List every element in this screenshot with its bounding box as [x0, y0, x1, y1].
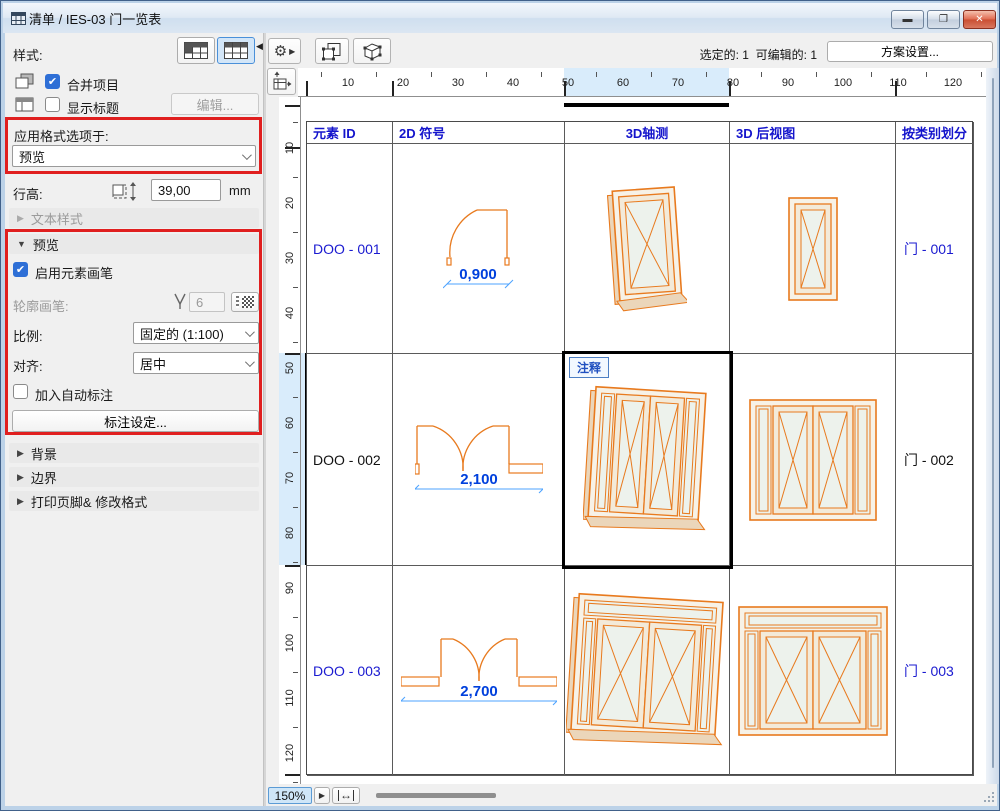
ruler-number: 120 [284, 739, 296, 767]
align-label: 对齐: [13, 356, 43, 375]
show-title-label: 显示标题 [67, 98, 119, 117]
ruler-number: 110 [284, 684, 296, 712]
scale-value: 固定的 (1:100) [140, 324, 224, 343]
auto-dimension-label: 加入自动标注 [35, 385, 113, 404]
preview-section-label: 预览 [33, 235, 59, 254]
resize-grip[interactable] [988, 796, 990, 798]
editable-count: 可编辑的: 1 [756, 48, 817, 62]
ruler-number: 80 [719, 77, 747, 89]
door-3d-axon-view [607, 183, 687, 315]
gear-icon: ⚙ [274, 42, 287, 60]
schedule-canvas[interactable]: 元素 ID2D 符号3D轴测3D 后视图按类别划分DOO - 0010,900门… [301, 97, 986, 784]
ruler-number: 60 [284, 409, 296, 437]
chevron-down-icon [245, 357, 255, 367]
outline-pen-value: 6 [196, 295, 203, 310]
ruler-tick [431, 72, 432, 77]
cell-element-id[interactable]: DOO - 001 [307, 144, 393, 354]
ruler-boundary-tick [895, 81, 897, 97]
ruler-tick [293, 727, 298, 728]
auto-dimension-checkbox[interactable] [13, 384, 28, 399]
ruler-tick [981, 72, 982, 77]
row-height-icon [111, 181, 141, 202]
ruler-boundary-tick [285, 353, 301, 355]
select-elements-button[interactable] [315, 38, 349, 64]
schedule-table: 元素 ID2D 符号3D轴测3D 后视图按类别划分DOO - 0010,900门… [306, 121, 973, 775]
scheme-settings-button[interactable]: 方案设置... [827, 41, 993, 62]
text-style-section-label: 文本样式 [31, 209, 83, 228]
edit-button[interactable]: 编辑... [171, 93, 259, 115]
settings-panel: 样式: ◀ ✔ 合并项目 [5, 33, 263, 806]
apply-format-select[interactable]: 预览 [12, 145, 256, 167]
chevron-down-icon [245, 327, 255, 337]
ruler-number: 110 [884, 77, 912, 89]
ruler-tick [293, 122, 298, 123]
close-button[interactable]: ✕ [963, 10, 996, 29]
cell-element-id[interactable]: DOO - 002 [307, 354, 393, 566]
ruler-number: 90 [284, 574, 296, 602]
table-header-0[interactable]: 元素 ID [307, 122, 393, 144]
door-2d-symbol: 2,700 [401, 631, 557, 711]
merge-items-icon [15, 73, 34, 90]
section-background[interactable]: ▶ 背景 [9, 443, 259, 463]
ruler-number: 90 [774, 77, 802, 89]
ruler-boundary-tick [564, 81, 566, 97]
ruler-tick [871, 72, 872, 77]
border-section-label: 边界 [31, 468, 57, 487]
cell-category[interactable]: 门 - 003 [896, 566, 974, 776]
row-height-unit: mm [229, 183, 251, 198]
row-height-input[interactable]: 39,00 [151, 179, 221, 201]
ruler-number: 120 [939, 77, 967, 89]
panel-collapse-arrow[interactable]: ◀ [256, 41, 263, 52]
selection-status: 选定的: 1 可编辑的: 1 [641, 46, 817, 63]
ruler-tick [706, 72, 707, 77]
cell-element-id[interactable]: DOO - 003 [307, 566, 393, 776]
ruler-tick [651, 72, 652, 77]
ruler-tick [293, 617, 298, 618]
selected-column-indicator [564, 103, 729, 107]
selected-count: 选定的: 1 [700, 48, 749, 62]
ruler-tick [293, 672, 298, 673]
ruler-boundary-tick [729, 81, 731, 97]
ruler-number: 50 [554, 77, 582, 89]
align-value: 居中 [140, 354, 166, 373]
ruler-number: 40 [284, 299, 296, 327]
style-flat-table-button[interactable] [177, 37, 215, 64]
ruler-tick [293, 452, 298, 453]
ruler-tick [816, 72, 817, 77]
ruler-tick [926, 72, 927, 77]
restore-button[interactable]: ❐ [927, 10, 960, 29]
ruler-boundary-tick [285, 565, 301, 567]
zoom-level-box[interactable]: 150% [268, 787, 312, 804]
ruler-number: 20 [284, 189, 296, 217]
scale-label: 比例: [13, 326, 43, 345]
ruler-number: 80 [284, 519, 296, 547]
element-id: DOO - 002 [307, 452, 381, 468]
selection-frames-icon [322, 42, 342, 61]
outline-pen-label: 轮廓画笔: [13, 296, 69, 315]
ruler-number: 70 [284, 464, 296, 492]
category-value: 门 - 002 [896, 450, 954, 470]
ruler-tick [293, 177, 298, 178]
ruler-tick [293, 397, 298, 398]
minimize-button[interactable]: ▬ [891, 10, 924, 29]
chevron-down-icon [242, 150, 252, 160]
element-id: DOO - 001 [307, 241, 381, 257]
ruler-number: 100 [284, 629, 296, 657]
cell-2d-symbol[interactable]: 2,100 [393, 354, 565, 566]
section-text-style[interactable]: ▶ 文本样式 [9, 208, 259, 228]
svg-text:2,700: 2,700 [460, 683, 498, 700]
ruler-tick [293, 287, 298, 288]
ruler-tick [293, 507, 298, 508]
row-height-value: 39,00 [158, 183, 191, 198]
door-3d-rear-view [787, 196, 839, 302]
cell-3d-rear[interactable] [730, 144, 896, 354]
ruler-selected-column-highlight [564, 68, 729, 97]
ruler-number: 60 [609, 77, 637, 89]
door-3d-rear-view [748, 398, 878, 522]
dimension-settings-button[interactable]: 标注设定... [12, 410, 259, 432]
ruler-number: 70 [664, 77, 692, 89]
pen-pattern-button[interactable] [231, 292, 259, 312]
schedule-grid-icon [11, 12, 26, 25]
cell-category[interactable]: 门 - 001 [896, 144, 974, 354]
cell-category[interactable]: 门 - 002 [896, 354, 974, 566]
apply-format-value: 预览 [19, 147, 45, 166]
checker-pattern-icon [242, 296, 254, 308]
outline-pen-value-box[interactable]: 6 [189, 292, 225, 312]
show-title-icon [15, 97, 34, 112]
section-border[interactable]: ▶ 边界 [9, 467, 259, 487]
selection-cube-icon [360, 42, 384, 61]
ruler-number: 30 [284, 244, 296, 272]
ruler-boundary-tick [285, 774, 301, 776]
ruler-boundary-tick [285, 105, 301, 107]
merge-items-label: 合并项目 [67, 75, 119, 94]
ruler-origin-button[interactable] [267, 68, 296, 95]
row-height-label: 行高: [13, 184, 43, 203]
door-3d-rear-view [737, 605, 889, 737]
line-pattern-icon [236, 296, 239, 308]
cell-3d-axon[interactable] [565, 144, 730, 354]
show-title-checkbox[interactable] [45, 97, 60, 112]
ruler-boundary-tick [285, 147, 301, 149]
align-select[interactable]: 居中 [133, 352, 259, 374]
vertical-scrollbar-thumb[interactable] [992, 78, 994, 768]
flyout-arrow-icon: ▶ [289, 47, 295, 56]
scale-select[interactable]: 固定的 (1:100) [133, 322, 259, 344]
cell-2d-symbol[interactable]: 0,900 [393, 144, 565, 354]
table-header-3[interactable]: 3D 后视图 [730, 122, 896, 144]
fit-width-icon: ↔ [338, 790, 354, 801]
door-3d-axon-view [566, 592, 728, 750]
svg-text:0,900: 0,900 [459, 266, 497, 283]
category-value: 门 - 001 [896, 239, 954, 259]
table-header-2[interactable]: 3D轴测 [565, 122, 730, 144]
ruler-boundary-tick [306, 81, 308, 97]
door-2d-symbol: 0,900 [443, 204, 515, 294]
cell-2d-symbol[interactable]: 2,700 [393, 566, 565, 776]
merge-items-checkbox[interactable]: ✔ [45, 74, 60, 89]
enable-element-pen-label: 启用元素画笔 [35, 263, 113, 282]
ruler-number: 10 [334, 77, 362, 89]
table-style1-icon [184, 42, 208, 59]
ruler-number: 30 [444, 77, 472, 89]
cell-3d-axon[interactable] [565, 354, 730, 566]
zoom-menu-button[interactable]: ▶ [314, 787, 330, 804]
expanded-arrow-icon: ▼ [17, 239, 26, 249]
collapsed-arrow-icon: ▶ [17, 496, 24, 507]
ruler-tick [293, 232, 298, 233]
footer-section-label: 打印页脚& 修改格式 [31, 492, 147, 511]
ruler-tick [321, 72, 322, 77]
schedule-window: 清单 / IES-03 门一览表 ▬ ❐ ✕ 样式: ◀ [0, 0, 1000, 811]
ruler-number: 50 [284, 354, 296, 382]
ruler-boundary-tick [392, 81, 394, 97]
cell-3d-rear[interactable] [730, 566, 896, 776]
ruler-tick [761, 72, 762, 77]
horizontal-scrollbar-thumb[interactable] [376, 793, 496, 798]
style-label: 样式: [13, 45, 43, 64]
ruler-tick [293, 562, 298, 563]
collapsed-arrow-icon: ▶ [17, 213, 24, 224]
ruler-tick [596, 72, 597, 77]
ruler-number: 100 [829, 77, 857, 89]
ruler-tick [293, 782, 298, 783]
ruler-tick [293, 342, 298, 343]
select-3d-elements-button[interactable] [353, 38, 391, 64]
enable-element-pen-checkbox[interactable]: ✔ [13, 262, 28, 277]
title-bar[interactable]: 清单 / IES-03 门一览表 [3, 3, 997, 33]
cell-3d-rear[interactable] [730, 354, 896, 566]
category-value: 门 - 003 [896, 661, 954, 681]
vertical-scrollbar[interactable] [986, 68, 999, 784]
collapsed-arrow-icon: ▶ [17, 472, 24, 483]
table-header-1[interactable]: 2D 符号 [393, 122, 565, 144]
ruler-tick [376, 72, 377, 77]
ruler-number: 40 [499, 77, 527, 89]
status-bar: 150% ▶ ↔ [266, 784, 997, 806]
horizontal-ruler[interactable]: 102030405060708090100110120 [298, 68, 986, 97]
collapsed-arrow-icon: ▶ [17, 448, 24, 459]
element-id: DOO - 003 [307, 663, 381, 679]
table-header-4[interactable]: 按类别划分 [896, 122, 974, 144]
cell-3d-axon[interactable] [565, 566, 730, 776]
scheme-options-button[interactable]: ⚙ ▶ [268, 38, 301, 64]
table-style2-icon [224, 42, 248, 59]
table-arrows-icon [271, 71, 292, 92]
pen-icon [173, 292, 187, 311]
door-3d-axon-view [583, 384, 711, 536]
window-title: 清单 / IES-03 门一览表 [29, 9, 161, 28]
style-grid-table-button[interactable] [217, 37, 255, 64]
section-footer[interactable]: ▶ 打印页脚& 修改格式 [9, 491, 259, 511]
fit-width-button[interactable]: ↔ [332, 787, 360, 804]
ruler-tick [486, 72, 487, 77]
zoom-level-value: 150% [275, 789, 306, 803]
background-section-label: 背景 [31, 444, 57, 463]
section-preview[interactable]: ▼ 预览 [9, 234, 259, 254]
svg-text:2,100: 2,100 [460, 471, 498, 488]
apply-format-label: 应用格式选项于: [14, 126, 109, 145]
vertical-ruler[interactable]: 102030405060708090100110120 [279, 97, 301, 784]
ruler-tick [541, 72, 542, 77]
door-2d-symbol: 2,100 [415, 421, 543, 499]
